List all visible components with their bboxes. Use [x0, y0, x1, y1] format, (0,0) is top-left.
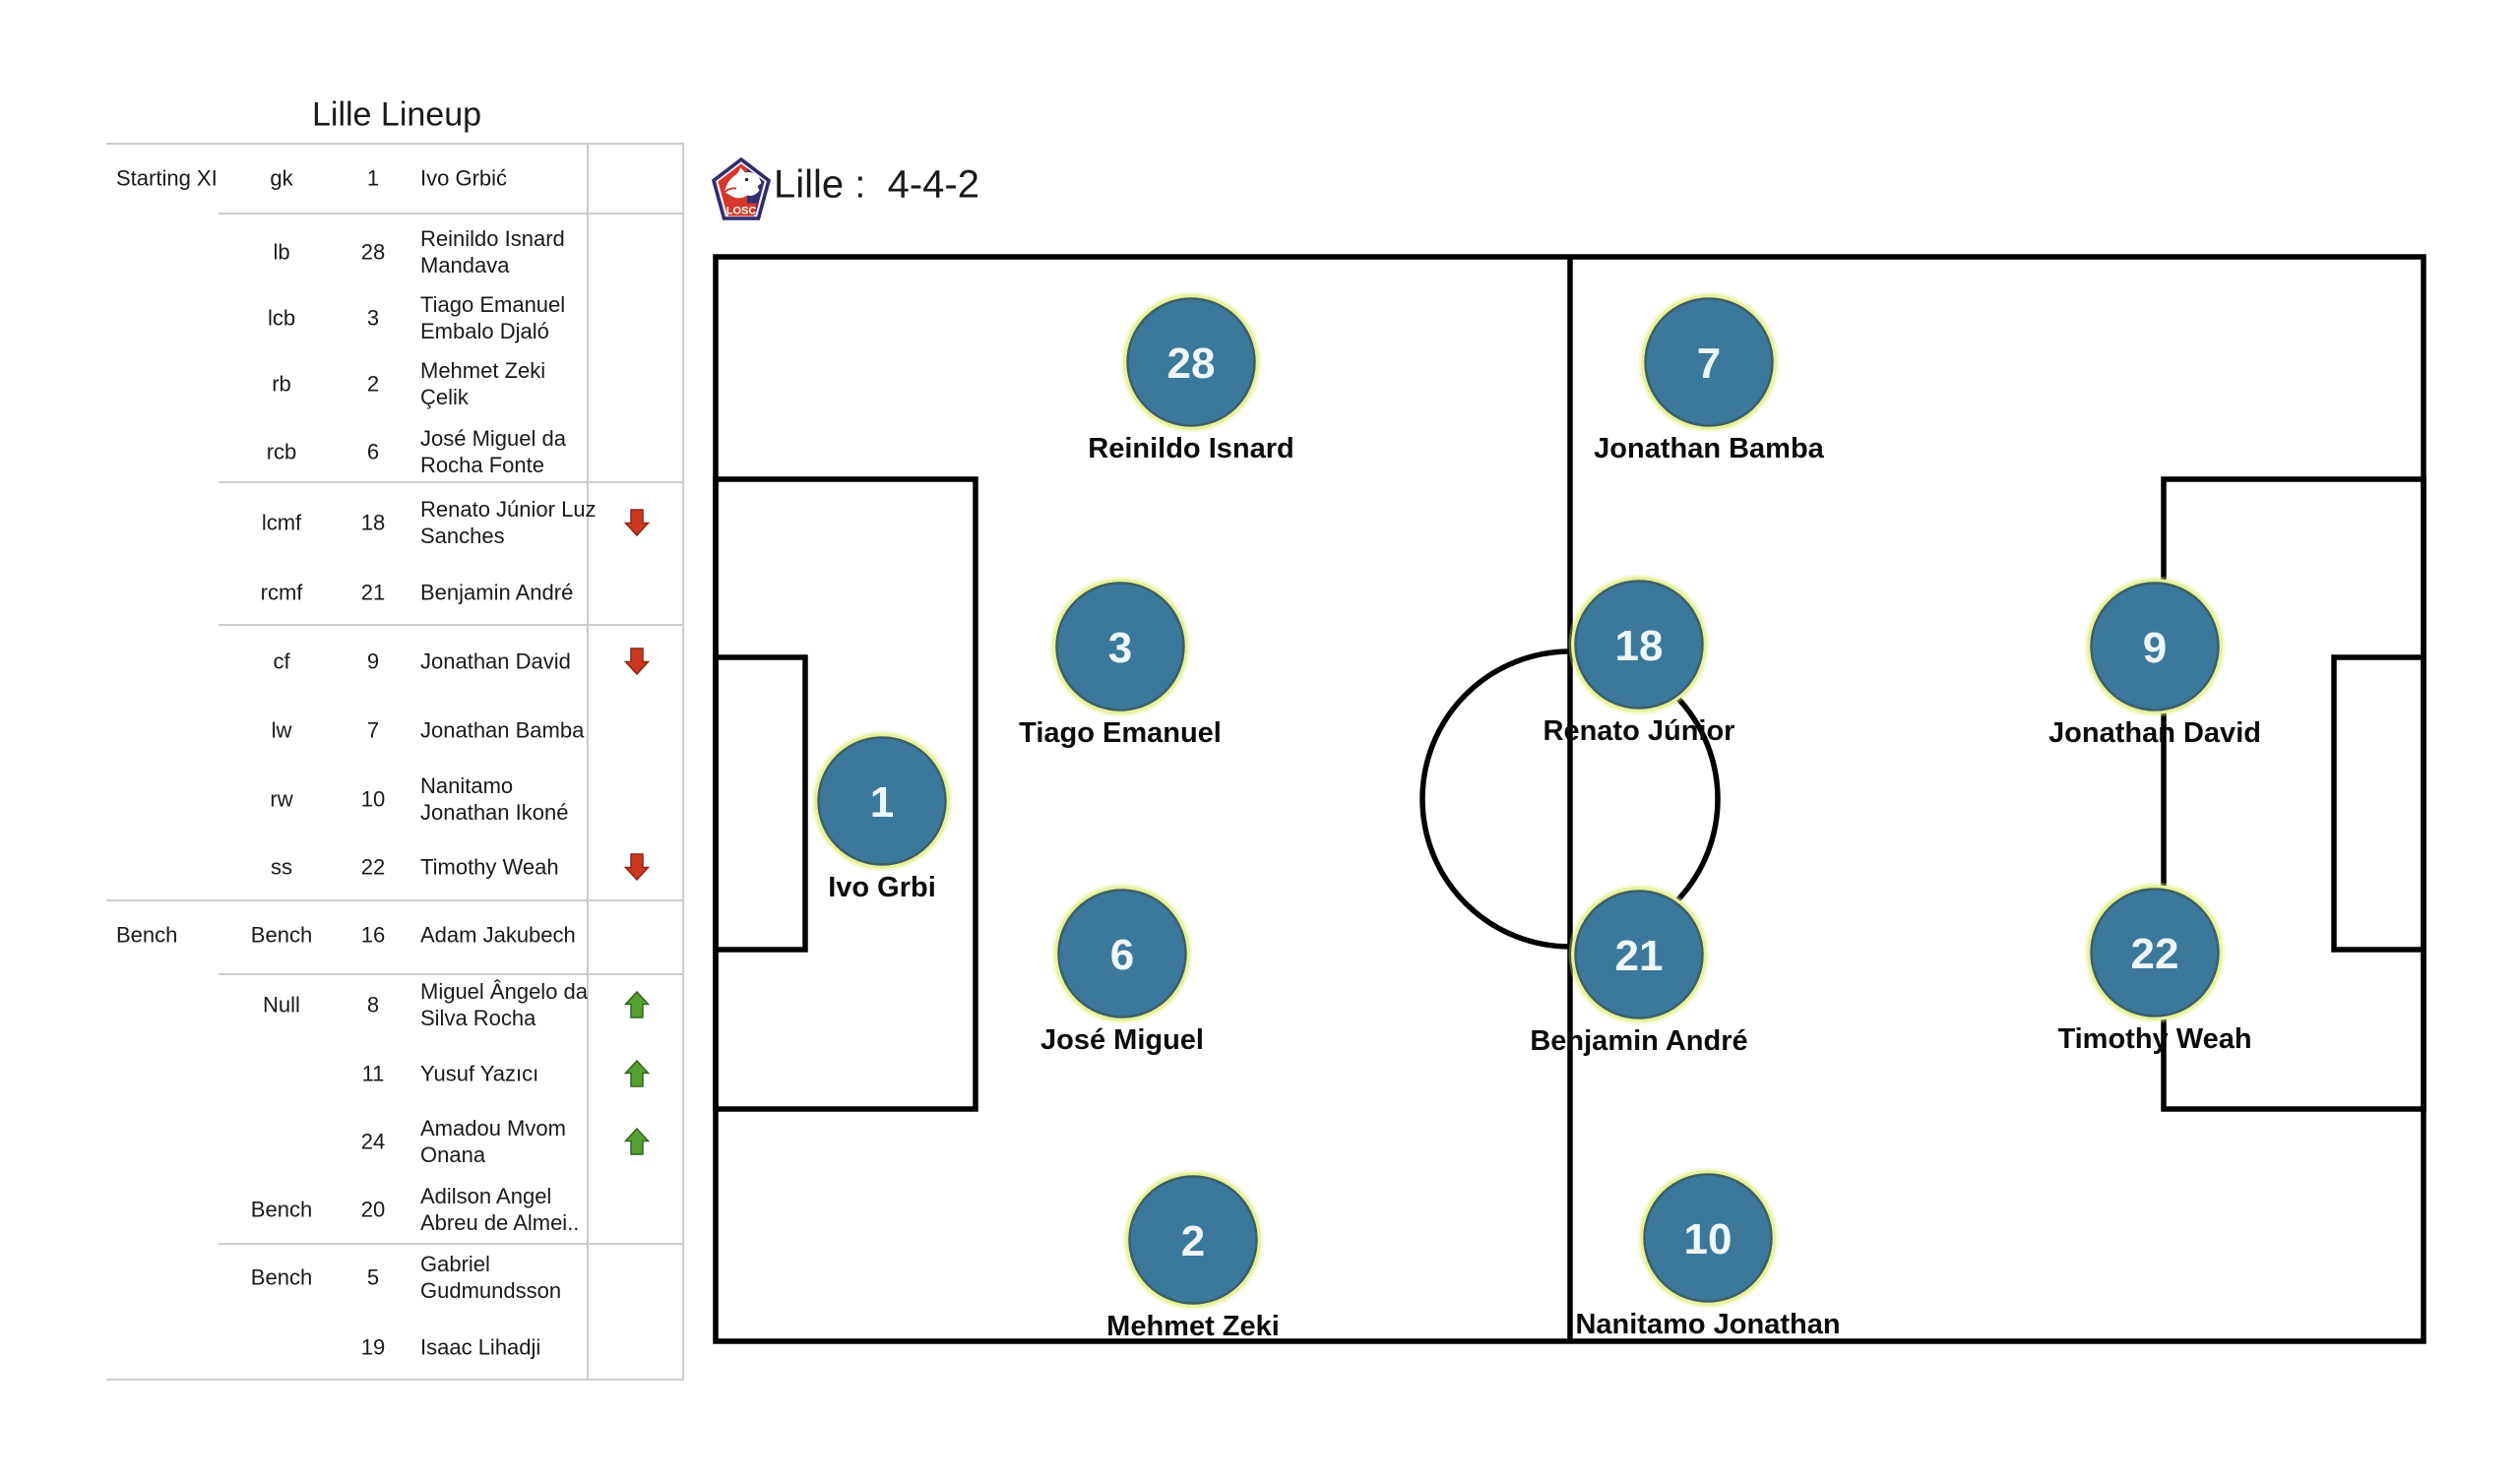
svg-text:Timothy Weah: Timothy Weah: [2057, 1023, 2251, 1055]
svg-text:Renato Júnior: Renato Júnior: [1543, 715, 1735, 747]
svg-text:Reinildo Isnard: Reinildo Isnard: [1088, 433, 1293, 464]
svg-text:10: 10: [1684, 1215, 1732, 1264]
svg-text:Tiago Emanuel: Tiago Emanuel: [1019, 717, 1222, 749]
svg-text:6: 6: [1110, 931, 1134, 979]
svg-text:18: 18: [1615, 622, 1664, 670]
svg-text:Jonathan Bamba: Jonathan Bamba: [1594, 433, 1825, 464]
svg-text:Benjamin André: Benjamin André: [1530, 1025, 1747, 1057]
svg-text:1: 1: [870, 778, 894, 827]
svg-text:Ivo Grbi: Ivo Grbi: [828, 872, 936, 903]
svg-text:3: 3: [1108, 624, 1132, 672]
svg-text:9: 9: [2143, 624, 2167, 672]
svg-text:Jonathan David: Jonathan David: [2048, 717, 2261, 749]
svg-text:José Miguel: José Miguel: [1040, 1024, 1204, 1056]
svg-text:22: 22: [2131, 930, 2179, 978]
svg-text:28: 28: [1167, 339, 1216, 388]
svg-text:7: 7: [1697, 339, 1721, 388]
svg-text:2: 2: [1181, 1217, 1205, 1265]
svg-text:Mehmet Zeki: Mehmet Zeki: [1106, 1311, 1280, 1342]
svg-text:21: 21: [1615, 932, 1664, 980]
svg-text:Nanitamo Jonathan: Nanitamo Jonathan: [1575, 1309, 1840, 1340]
